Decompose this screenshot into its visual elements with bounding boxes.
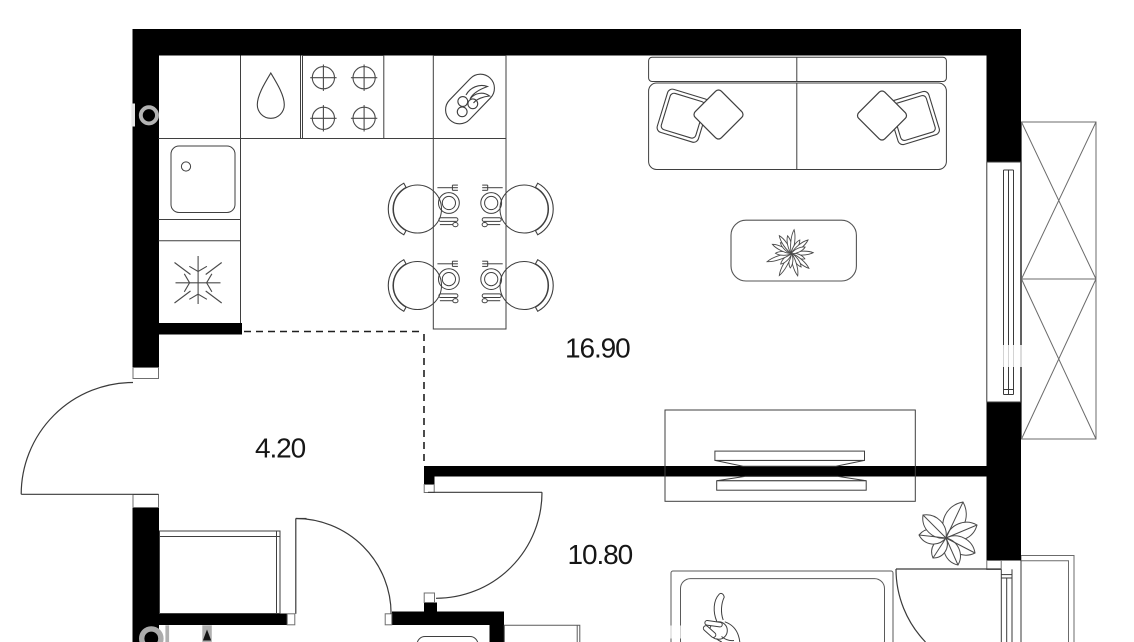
svg-text:10.80: 10.80 [568,539,633,570]
svg-text:4.20: 4.20 [255,433,306,464]
svg-text:16.90: 16.90 [565,333,630,364]
